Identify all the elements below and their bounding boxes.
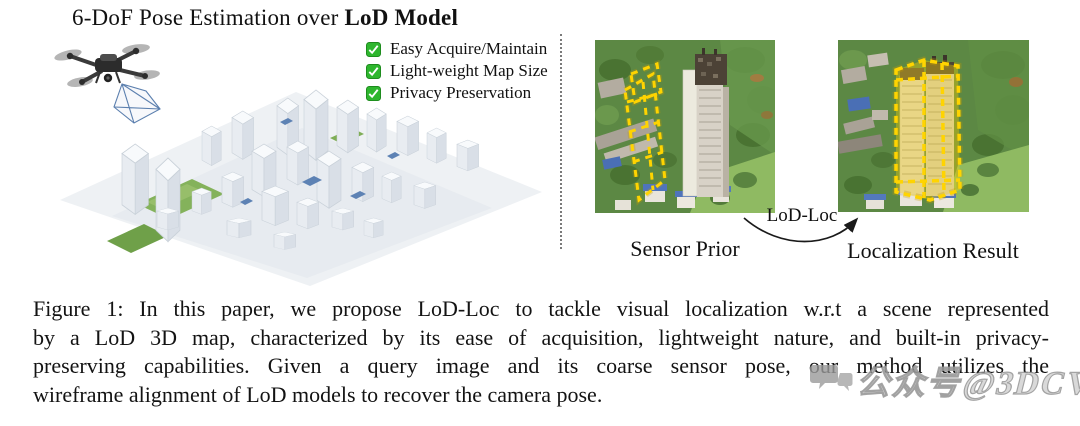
tower: [683, 48, 729, 197]
figure-title-bold: LoD Model: [344, 5, 458, 30]
feature-checklist: Easy Acquire/Maintain Light-weight Map S…: [366, 38, 548, 104]
aerial-photo-localization-result: [838, 40, 1029, 212]
check-icon: [366, 64, 381, 79]
caption-line: wireframe alignment of LoD models to rec…: [33, 381, 1049, 410]
check-icon: [366, 86, 381, 101]
caption-line: by a LoD 3D map, characterized by its ea…: [33, 324, 1049, 353]
checklist-label: Privacy Preservation: [390, 83, 531, 103]
figure-caption: Figure 1: In this paper, we propose LoD-…: [33, 295, 1049, 409]
pose-wireframe-aligned: [896, 60, 960, 200]
checklist-item: Light-weight Map Size: [366, 60, 548, 82]
vertical-dotted-separator: [560, 34, 562, 249]
check-icon: [366, 42, 381, 57]
caption-line: preserving capabilities. Given a query i…: [33, 352, 1049, 381]
sensor-prior-label: Sensor Prior: [593, 236, 777, 262]
checklist-label: Easy Acquire/Maintain: [390, 39, 547, 59]
localization-result-label: Localization Result: [824, 238, 1042, 264]
aerial-photo-sensor-prior: [595, 40, 775, 213]
figure-page: 6-DoF Pose Estimation over LoD Model: [0, 0, 1080, 426]
checklist-item: Easy Acquire/Maintain: [366, 38, 548, 60]
figure-title-regular: 6-DoF Pose Estimation over: [72, 5, 344, 30]
checklist-label: Light-weight Map Size: [390, 61, 548, 81]
figure-title: 6-DoF Pose Estimation over LoD Model: [72, 5, 458, 31]
checklist-item: Privacy Preservation: [366, 82, 548, 104]
arrow-label: LoD-Loc: [752, 205, 852, 227]
caption-line: Figure 1: In this paper, we propose LoD-…: [33, 295, 1049, 324]
lod-city-model: [52, 86, 552, 290]
